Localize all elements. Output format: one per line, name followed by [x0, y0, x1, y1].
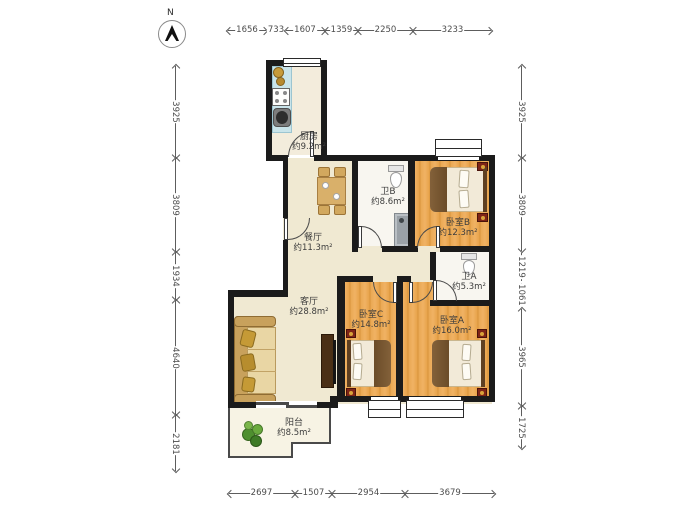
sink-basin	[276, 111, 288, 124]
kitchen-window	[283, 58, 321, 67]
wall	[317, 402, 338, 408]
dining-label: 餐厅约11.3m²	[281, 233, 345, 253]
entry-recess-outside	[200, 150, 283, 292]
dim-segment: 2954	[332, 486, 405, 500]
dim-right: 3925 3809 1219 1061 3965 1725	[514, 65, 528, 449]
north-label: N	[167, 8, 174, 18]
bed-b-blanket	[430, 167, 447, 212]
dim-segment: 2250	[358, 23, 413, 37]
dim-segment: 3925	[514, 65, 528, 158]
wall	[440, 246, 489, 252]
wall	[396, 282, 403, 402]
burner	[283, 99, 287, 103]
bedroom-c-door-leaf	[393, 282, 397, 303]
wall	[337, 276, 345, 402]
dim-segment: 3233	[413, 23, 492, 37]
lamp-dot	[349, 332, 353, 336]
dim-segment: 1607	[285, 23, 325, 37]
dim-segment: 1061	[514, 282, 528, 308]
bed-b-headboard	[483, 167, 487, 212]
bath-b-door-leaf	[358, 226, 362, 248]
wall	[314, 155, 327, 161]
north-arrow-notch	[167, 34, 177, 42]
throw-pillow	[240, 353, 257, 372]
living-label: 客厅约28.8m²	[277, 297, 341, 317]
dining-table	[317, 177, 346, 205]
dim-segment: 2697	[228, 486, 295, 500]
bedroom-a-door-leaf	[409, 282, 413, 303]
bed-a-headboard	[481, 340, 485, 387]
chair	[318, 205, 330, 215]
sliding-door-panel	[256, 402, 289, 405]
balcony-label: 阳台约8.5m²	[262, 418, 326, 438]
dim-segment: 733	[267, 23, 285, 37]
pillow	[352, 363, 362, 381]
bath-b-label: 卫B约8.6m²	[356, 187, 420, 207]
wall	[382, 246, 418, 252]
pillow	[461, 344, 471, 362]
chair	[318, 167, 330, 177]
bedroom-b-label: 卧室B约12.3m²	[426, 218, 490, 238]
cushion-line	[247, 371, 276, 372]
lamp-dot	[480, 391, 484, 395]
bedroom-a-label: 卧室A约16.0m²	[420, 316, 484, 336]
dim-segment: 2181	[168, 415, 182, 472]
pillow	[458, 170, 469, 189]
dim-segment: 3809	[514, 158, 528, 252]
dim-segment: 4640	[168, 300, 182, 415]
chair	[334, 167, 346, 177]
dim-segment: 1359	[325, 23, 358, 37]
bedroom-c-window	[368, 400, 401, 418]
burner	[275, 91, 279, 95]
lamp-dot	[349, 391, 353, 395]
plant-icon	[244, 421, 253, 430]
dim-segment: 1725	[514, 406, 528, 449]
dim-segment: 1507	[295, 486, 332, 500]
pillow	[458, 190, 469, 209]
wall	[283, 155, 288, 218]
toilet-tank	[388, 165, 404, 172]
dim-segment: 1219	[514, 252, 528, 282]
dim-segment: 3965	[514, 308, 528, 406]
plant-icon	[250, 435, 262, 447]
burner	[275, 99, 279, 103]
shower-head	[399, 218, 404, 223]
wall	[430, 252, 436, 280]
dim-segment: 3679	[405, 486, 495, 500]
kitchen-label: 厨房约9.2m²	[277, 132, 341, 152]
lamp-dot	[481, 165, 485, 169]
pillow	[352, 343, 362, 361]
bedroom-b-window	[435, 139, 482, 157]
bed-c-headboard	[347, 340, 351, 387]
dim-segment: 3809	[168, 158, 182, 252]
floor-plan: 厨房约9.2m² 餐厅约11.3m² 卫B约8.6m² 卧室B约12.3m² 卫…	[0, 0, 700, 525]
dim-segment: 1656	[227, 23, 267, 37]
wall	[228, 290, 288, 297]
bed-c-blanket	[374, 340, 391, 387]
tv-icon	[333, 340, 336, 384]
sliding-door-panel	[286, 405, 317, 408]
dim-top: 1656 733 1607 1359 2250 3233	[227, 23, 492, 37]
dim-bottom: 2697 1507 2954 3679	[228, 486, 495, 500]
bed-a-blanket	[432, 340, 449, 387]
bedroom-c-label: 卧室C约14.8m²	[339, 310, 403, 330]
wall	[228, 297, 234, 408]
plate	[333, 193, 340, 200]
plate	[322, 182, 329, 189]
cushion-line	[247, 349, 276, 350]
wall	[266, 60, 272, 161]
throw-pillow	[241, 376, 256, 393]
sofa-arm	[234, 316, 276, 327]
dim-segment: 3925	[168, 65, 182, 158]
toilet-tank	[461, 253, 477, 260]
dim-segment: 1934	[168, 252, 182, 300]
burner	[283, 91, 287, 95]
pot-icon	[276, 77, 285, 86]
pillow	[461, 363, 471, 381]
chair	[334, 205, 346, 215]
bedroom-a-window	[406, 400, 464, 418]
bath-a-label: 卫A约5.3m²	[437, 272, 501, 292]
dim-left: 3925 3809 1934 4640 2181	[168, 65, 182, 472]
